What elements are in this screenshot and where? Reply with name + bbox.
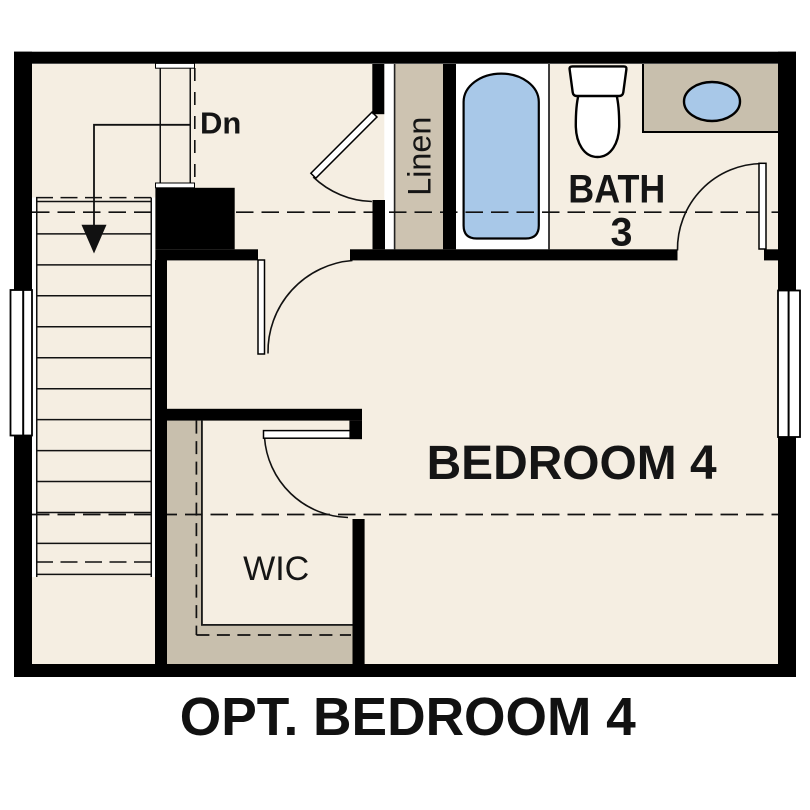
svg-text:WIC: WIC [243,550,309,588]
svg-text:Linen: Linen [402,117,438,196]
svg-text:BEDROOM 4: BEDROOM 4 [427,436,717,490]
svg-text:OPT. BEDROOM 4: OPT. BEDROOM 4 [180,688,636,747]
svg-text:3: 3 [611,211,633,255]
svg-text:Dn: Dn [200,106,241,141]
svg-text:BATH: BATH [568,167,665,211]
